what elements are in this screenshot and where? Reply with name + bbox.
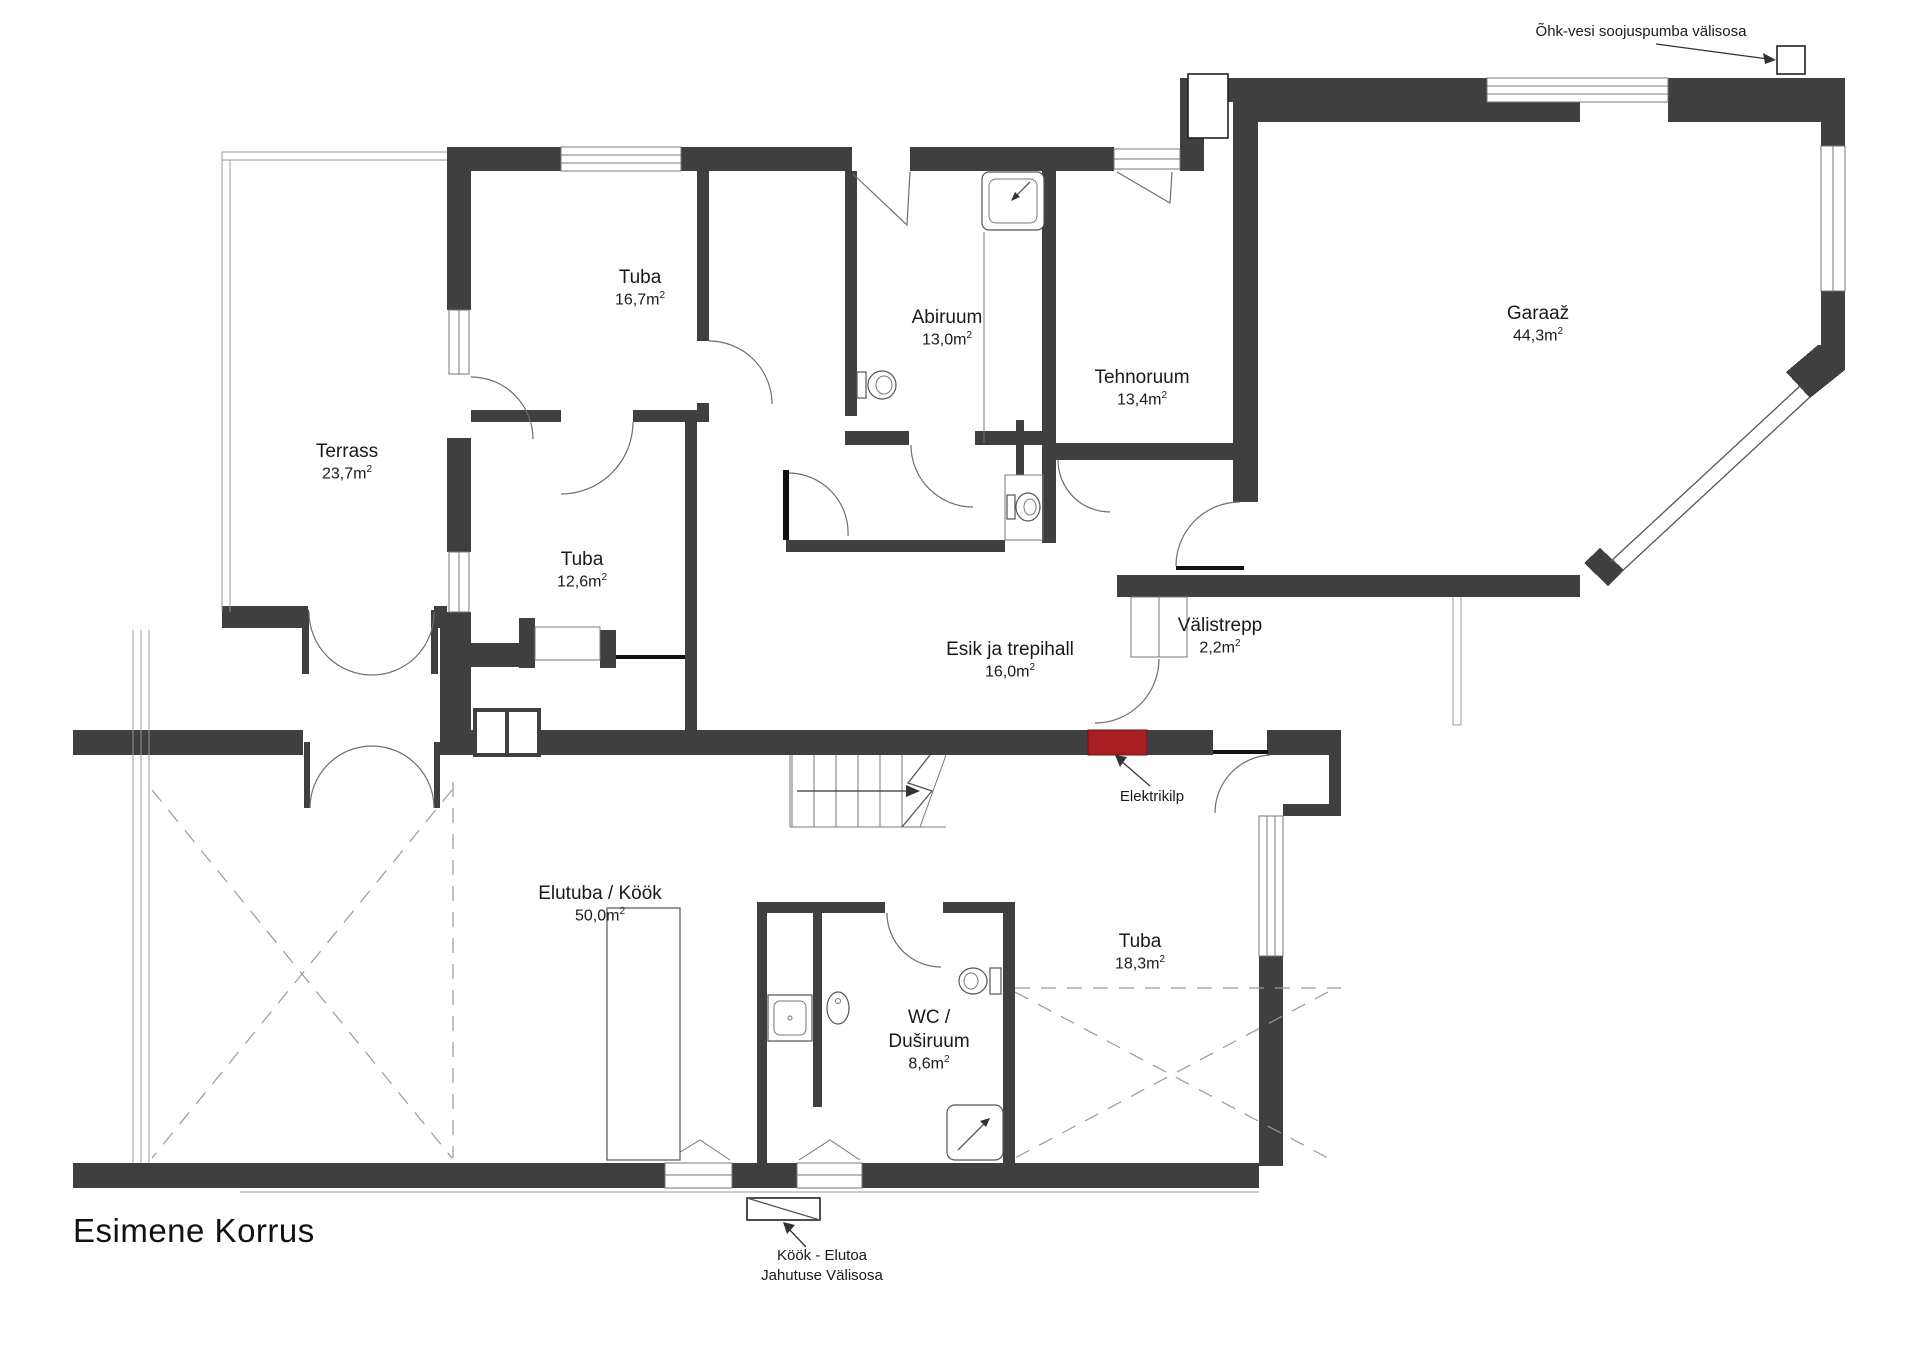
wall-segment — [1042, 171, 1056, 543]
room-area: 23,7m2 — [316, 464, 378, 484]
heat-pump-leader — [1656, 44, 1768, 59]
room-label-wc-dusiruum: WC / Duširuum 8,6m2 — [888, 1006, 969, 1074]
room-area: 12,6m2 — [557, 572, 607, 592]
door-arc — [709, 341, 772, 404]
wall-segment — [757, 902, 885, 913]
door-arc — [911, 445, 973, 507]
room-label-esik: Esik ja trepihall 16,0m2 — [946, 638, 1074, 682]
room-name: WC / — [888, 1006, 969, 1030]
wall-segment — [1147, 730, 1213, 755]
door-arc — [1176, 502, 1240, 566]
room-label-tuba-18: Tuba 18,3m2 — [1115, 930, 1165, 974]
door-post — [431, 610, 438, 674]
wall-segment — [786, 540, 1005, 552]
entry-door-leaf — [853, 172, 910, 225]
room-label-elutuba-kook: Elutuba / Köök 50,0m2 — [538, 882, 662, 926]
wall-segment — [1016, 420, 1024, 475]
window — [1487, 78, 1668, 102]
chimney — [1188, 74, 1228, 138]
wall-segment — [73, 1163, 665, 1188]
basin-icon — [827, 992, 849, 1024]
room-area: 2,2m2 — [1178, 638, 1263, 658]
room-label-tehnoruum: Tehnoruum 13,4m2 — [1094, 366, 1189, 410]
room-label-tuba-16: Tuba 16,7m2 — [615, 266, 665, 310]
double-door-arc — [309, 612, 372, 675]
wall-segment — [697, 171, 709, 341]
room-area: 8,6m2 — [888, 1054, 969, 1074]
garage-door-stub — [1584, 548, 1624, 586]
double-door-arc — [372, 746, 434, 808]
room-name: Välistrepp — [1178, 614, 1263, 638]
room-name: Tuba — [557, 548, 607, 572]
wall-segment — [1283, 804, 1341, 816]
room-name: Tuba — [1115, 930, 1165, 954]
cooling-unit — [747, 1198, 820, 1220]
room-label-valistrepp: Välistrepp 2,2m2 — [1178, 614, 1263, 658]
room-name-line2: Duširuum — [888, 1030, 969, 1054]
staircase — [790, 755, 946, 827]
room-name: Garaaž — [1507, 302, 1569, 326]
wall-segment — [685, 422, 697, 730]
room-name: Esik ja trepihall — [946, 638, 1074, 662]
wall-segment — [1255, 102, 1580, 122]
double-door-arc — [310, 746, 372, 808]
room-label-terrass: Terrass 23,7m2 — [316, 440, 378, 484]
door-arc — [1215, 755, 1270, 813]
room-area: 18,3m2 — [1115, 954, 1165, 974]
door-post — [434, 742, 440, 808]
wall-segment — [943, 902, 1015, 913]
room-name: Abiruum — [912, 306, 983, 330]
wall-segment — [1056, 443, 1233, 460]
toilet-icon — [857, 371, 896, 399]
wall-segment — [732, 1163, 797, 1188]
wall-segment — [73, 730, 303, 755]
wall-segment — [862, 1163, 1259, 1188]
electrical-panel-leader — [1120, 760, 1150, 786]
door-leaf — [1117, 172, 1172, 203]
wall-segment — [681, 147, 852, 171]
cooling-unit-label: Köök - Elutoa Jahutuse Välisosa — [761, 1246, 883, 1285]
door-post — [304, 742, 310, 808]
room-area: 50,0m2 — [538, 906, 662, 926]
kitchen-counter — [607, 908, 680, 1160]
room-name: Tuba — [615, 266, 665, 290]
room-label-abiruum: Abiruum 13,0m2 — [912, 306, 983, 350]
cooling-label-line2: Jahutuse Välisosa — [761, 1266, 883, 1286]
wall-segment — [447, 147, 471, 310]
wall-segment — [440, 617, 466, 732]
room-name: Elutuba / Köök — [538, 882, 662, 906]
heat-pump-unit — [1777, 46, 1805, 74]
door-arc — [789, 473, 848, 536]
wall-segment — [1668, 78, 1845, 102]
door-post — [302, 610, 309, 674]
room-label-tuba-12: Tuba 12,6m2 — [557, 548, 607, 592]
door-post — [600, 630, 616, 668]
wall-segment — [813, 913, 822, 1107]
room-label-garaaz: Garaaž 44,3m2 — [1507, 302, 1569, 346]
wall-segment — [1003, 913, 1015, 1165]
garage-door — [1610, 386, 1800, 562]
sink-icon — [768, 995, 812, 1041]
toilet-icon — [1007, 493, 1040, 521]
wall-segment — [447, 438, 471, 552]
wall-segment — [845, 171, 857, 416]
shower-icon — [947, 1105, 1003, 1160]
cooling-unit-leader — [788, 1228, 806, 1247]
window — [561, 147, 681, 171]
wall-segment — [471, 410, 561, 422]
wall-segment — [845, 431, 909, 445]
floor-plan: Tuba 16,7m2 Terrass 23,7m2 Tuba 12,6m2 A… — [0, 0, 1920, 1356]
door-arc — [1095, 659, 1159, 723]
wall-segment — [1267, 730, 1341, 755]
wall-segment — [1821, 78, 1845, 146]
double-door-arc — [372, 612, 434, 675]
wall-segment — [1668, 102, 1845, 122]
door-niche — [535, 627, 600, 660]
room-area: 13,0m2 — [912, 330, 983, 350]
room-area: 44,3m2 — [1507, 326, 1569, 346]
door-arc — [561, 422, 633, 494]
room-area: 16,7m2 — [615, 290, 665, 310]
wall-segment — [1821, 291, 1845, 348]
doors-group — [309, 172, 1810, 967]
page-title: Esimene Korrus — [73, 1212, 315, 1250]
electrical-panel-label: Elektrikilp — [1120, 787, 1184, 807]
wall-segment — [222, 606, 308, 628]
door-arc — [1058, 460, 1110, 512]
wall-segment — [697, 403, 709, 422]
electrical-panel-box — [1088, 730, 1147, 755]
room-name: Tehnoruum — [1094, 366, 1189, 390]
door-leaf — [783, 470, 789, 540]
wall-segment — [910, 147, 1114, 171]
heat-pump-label: Õhk-vesi soojuspumba välisosa — [1536, 22, 1747, 42]
wall-segment — [1117, 575, 1580, 597]
door-post — [519, 618, 535, 668]
wall-segment — [757, 913, 767, 1163]
room-area: 13,4m2 — [1094, 390, 1189, 410]
wall-segment — [1233, 78, 1258, 502]
toilet-icon — [959, 968, 1001, 994]
room-name: Terrass — [316, 440, 378, 464]
cooling-label-line1: Köök - Elutoa — [761, 1246, 883, 1266]
wall-segment — [975, 431, 1042, 445]
door-arc — [887, 913, 941, 967]
garage-door — [1620, 397, 1810, 573]
window — [1259, 816, 1283, 956]
door-arc — [471, 377, 533, 439]
room-area: 16,0m2 — [946, 662, 1074, 682]
